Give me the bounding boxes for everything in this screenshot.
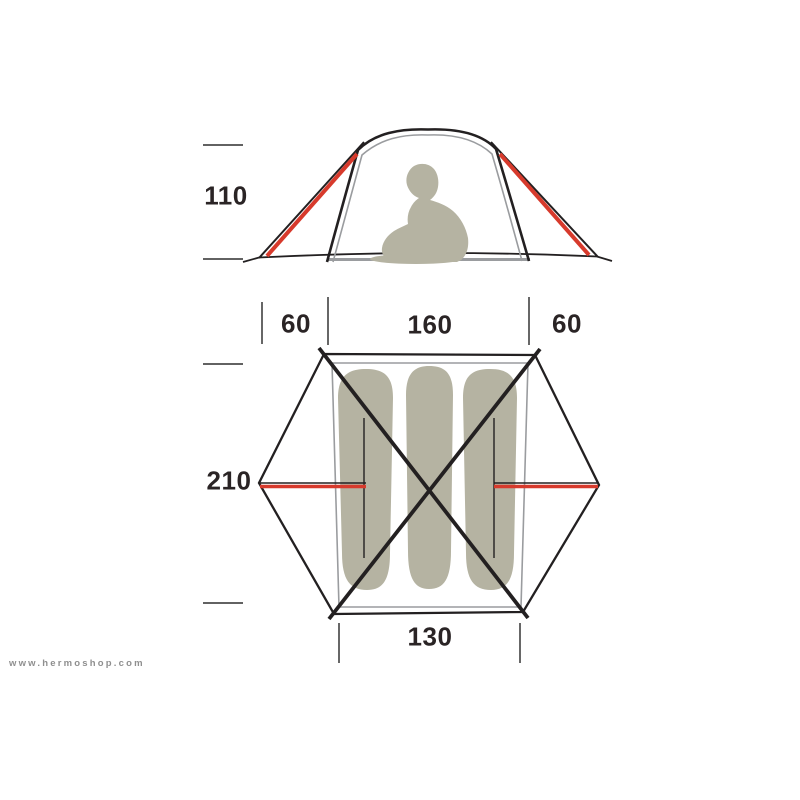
- guy-line-left: [259, 142, 364, 258]
- sleeping-mat-right: [463, 369, 517, 590]
- tent-dimensions-diagram: 110 60 160 60 210 130 www.hermoshop.com: [0, 0, 800, 800]
- tent-side-view: [203, 129, 612, 264]
- vestibule-right-dim-label: 60: [552, 309, 582, 340]
- shop-watermark: www.hermoshop.com: [9, 658, 145, 669]
- tent-floor-plan: [203, 297, 599, 663]
- vestibule-left-dim-label: 60: [281, 309, 311, 340]
- length-dim-label: 210: [207, 466, 252, 497]
- sleeping-mat-left: [338, 369, 393, 590]
- person-base-shadow: [370, 254, 462, 264]
- door-width-dim-label: 130: [408, 622, 453, 653]
- tent-diagram-artwork: [0, 0, 800, 800]
- inner-width-dim-label: 160: [408, 310, 453, 341]
- sleeping-mats: [338, 366, 517, 590]
- height-dim-label: 110: [204, 181, 247, 212]
- person-silhouette: [370, 164, 468, 264]
- sleeping-mat-middle: [406, 366, 453, 589]
